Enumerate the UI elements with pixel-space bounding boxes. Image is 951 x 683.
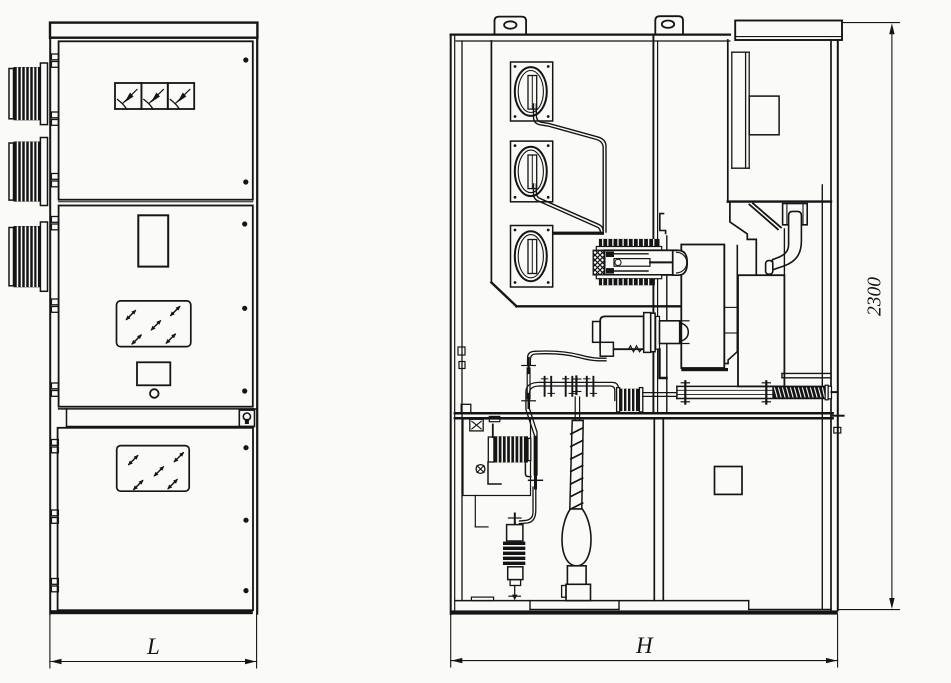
svg-text:2300: 2300 — [865, 277, 886, 316]
svg-text:H: H — [635, 633, 654, 658]
svg-text:L: L — [146, 634, 160, 659]
